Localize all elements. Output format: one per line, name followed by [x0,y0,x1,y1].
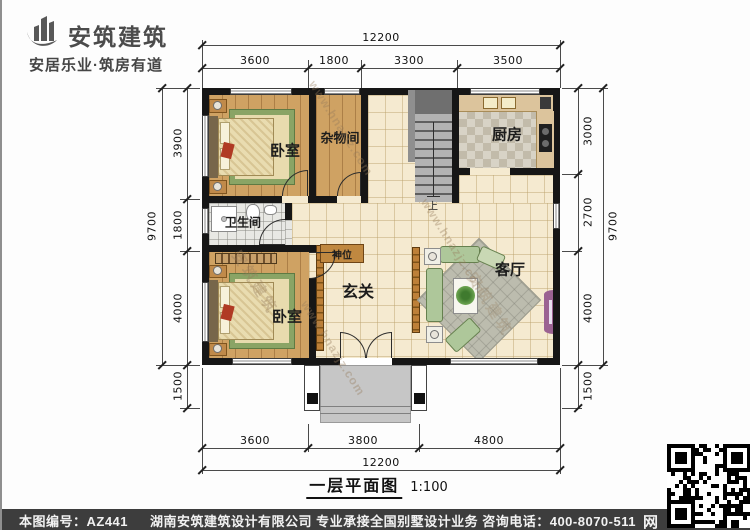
dim-bottom-seg-2: 3800 [348,434,378,447]
storage-top-window [324,88,360,95]
side-table-lamp-icon [428,252,437,261]
qr-module [703,460,707,464]
dim-right-seg-1: 3000 [582,116,595,146]
side-table-lamp-icon-2 [430,330,439,339]
kitchen-appliance [540,97,551,109]
stove-burner-icon-2 [542,140,549,147]
qr-module [735,524,739,528]
kitchen-sink [483,97,498,109]
qr-module [723,524,727,528]
dim-line [180,199,200,200]
qr-module [699,512,703,516]
dim-line [562,174,582,175]
storage-door-leaf [360,172,361,196]
dim-right-seg-3: 4000 [582,293,595,323]
kitchen-door-opening [470,168,510,175]
dim-top-seg-1: 3600 [240,54,270,67]
qr-module [711,512,715,516]
dim-bottom-seg-1: 3600 [240,434,270,447]
dim-top-total: 12200 [362,31,400,44]
qr-module [691,524,695,528]
bedroom1-door-leaf [307,170,308,196]
dim-left-outer: 9700 [146,211,159,241]
bedroom2-lamp-icon-2 [213,344,222,353]
qr-module [671,472,675,476]
qr-code [667,444,750,528]
bedroom1-door-opening [282,196,308,203]
stairs-landing [415,90,452,114]
company-name: 安筑建筑 [68,18,168,52]
porch-step-line [320,406,411,407]
company-tagline: 安居乐业·筑房有道 [29,54,163,75]
qr-module [739,460,743,464]
dim-line [202,40,203,88]
bedroom1-pillow [220,122,230,144]
stairs-stringer [408,90,415,162]
dim-right-seg-2: 2700 [582,197,595,227]
dim-left-seg-2: 1800 [172,210,185,240]
bathroom-label: 卫生间 [225,214,261,231]
living-right-window [553,203,560,229]
kitchen-top-window [470,88,540,95]
qr-module [683,516,687,520]
bedroom1-lamp-icon-2 [213,182,222,191]
porch-step-line-2 [320,413,411,414]
qr-module [675,484,679,488]
foyer-label: 玄关 [342,278,374,302]
dim-line [202,448,560,449]
living-upper-floor [459,175,553,203]
kitchen-label: 厨房 [492,124,522,145]
sofa-left [426,268,443,322]
dim-bottom-total: 12200 [362,456,400,469]
porch-base-left [304,365,320,411]
dim-top-seg-2: 1800 [319,54,349,67]
shrine-label: 神位 [332,247,352,262]
dim-bottom-seg-3: 4800 [474,434,504,447]
porch-slab [320,365,411,423]
qr-module [715,472,719,476]
dim-line [202,368,203,474]
foyer-screen-right [412,247,420,333]
qr-module [691,472,695,476]
company-logo-icon [24,12,66,52]
drawing-scale: 1:100 [410,480,447,495]
dim-left-seg-4: 1500 [172,371,185,401]
floor-plan-sheet: 安筑建筑 安居乐业·筑房有道 [0,0,750,530]
porch-base-right [411,365,427,411]
bathroom-bottom-wall [202,245,316,252]
bedroom1-label: 卧室 [270,140,300,161]
dim-line [180,251,200,252]
dim-left-seg-1: 3900 [172,128,185,158]
storage-door-opening [337,196,361,203]
bathroom-left-window [202,208,209,234]
living-bottom-window [450,358,538,365]
bedroom1-top-window [230,88,292,95]
drawing-title: 一层平面图 [306,478,402,499]
living-label: 客厅 [495,259,525,280]
bedroom2-headboard [209,280,218,342]
qr-module [707,476,711,480]
dim-top-seg-3: 3300 [394,54,424,67]
bathroom-door-opening [285,220,292,245]
qr-module [707,492,711,496]
kitchen-sink-2 [501,97,516,109]
qr-module [715,484,719,488]
bathroom-door-leaf [259,244,285,245]
qr-module [707,448,711,452]
qr-module [699,504,703,508]
dim-line [162,88,163,365]
qr-module [743,516,747,520]
dim-top-seg-4: 3500 [493,54,523,67]
bedroom1-left-window [202,115,209,177]
dim-line [560,40,561,88]
dim-line [202,470,560,471]
tv-screen-line [549,300,552,324]
qr-module [699,496,703,500]
main-door-right-leaf [391,332,392,358]
bedroom2-lamp-icon [213,266,222,275]
bedroom2-bottom-window [232,358,292,365]
qr-module [683,460,687,464]
plan-number: 本图编号：AZ441 [19,511,128,530]
qr-module [695,480,699,484]
porch-column-left [307,393,318,404]
dim-right-seg-4: 1500 [582,371,595,401]
drawing-title-row: 一层平面图1:100 [306,472,447,496]
qr-module [703,480,707,484]
stove-burner-icon [542,128,549,135]
dim-line [603,88,604,365]
qr-module [735,480,739,484]
qr-module [671,492,675,496]
qr-module [715,452,719,456]
dim-line [180,408,200,409]
qr-module [711,504,715,508]
web-char: 网 [643,511,659,530]
porch-column-right [414,393,425,404]
dim-left-seg-3: 4000 [172,293,185,323]
dim-line [562,251,582,252]
dim-line [202,68,560,69]
dim-line [202,45,560,46]
dim-right-outer: 9700 [607,211,620,241]
dim-line [560,368,561,474]
bedroom1-lamp-icon [213,101,222,110]
dim-line [562,408,582,409]
bathroom-sink [264,205,277,215]
company-info: 湖南安筑建筑设计有限公司 专业承接全国别墅设计业务 咨询电话：400-8070-… [150,511,636,530]
stairs-arrow-line [433,122,434,196]
bedroom2-left-window [202,282,209,342]
footer-bar: 本图编号：AZ441 湖南安筑建筑设计有限公司 专业承接全国别墅设计业务 咨询电… [2,509,750,530]
bedroom1-headboard [209,116,218,178]
